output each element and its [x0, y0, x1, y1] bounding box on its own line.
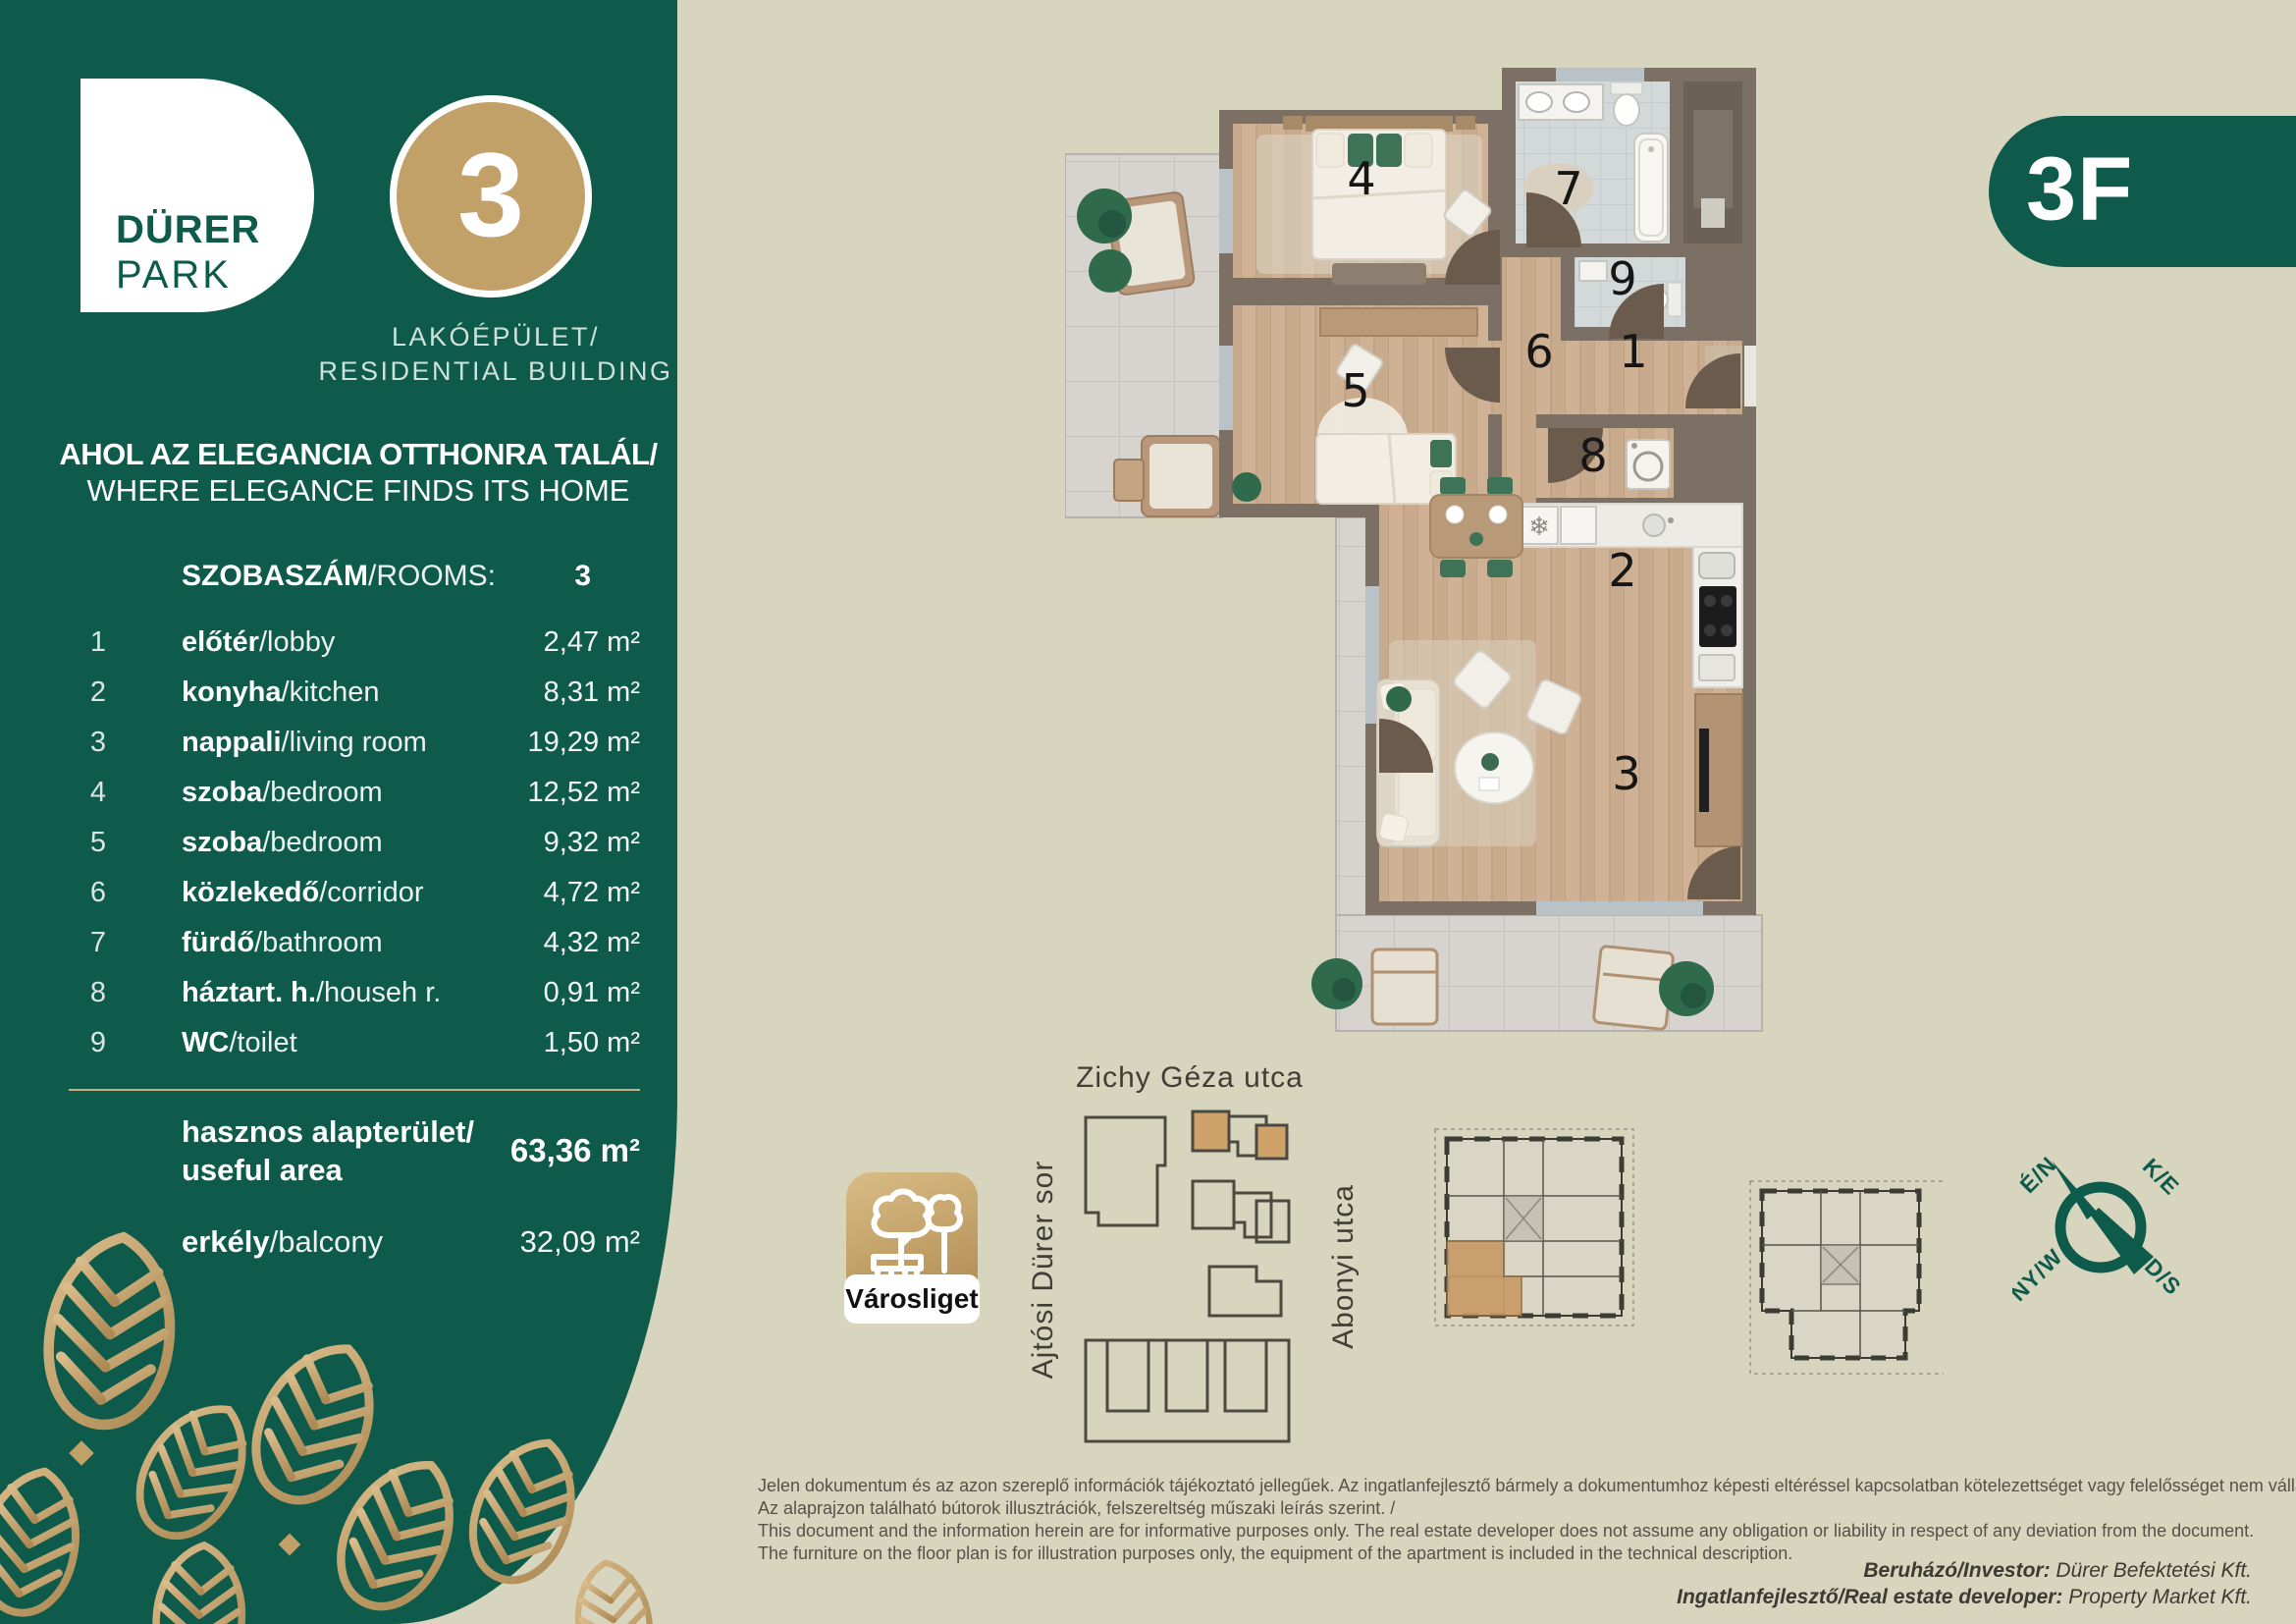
park-label: Városliget	[844, 1274, 980, 1324]
tagline: AHOL AZ ELEGANCIA OTTHONRA TALÁL/ WHERE …	[29, 436, 687, 509]
sitemap-building	[1209, 1267, 1281, 1316]
unit-label-pill: 3F	[1989, 116, 2296, 267]
rooms-table-header: SZOBASZÁM/ROOMS: 3	[69, 560, 640, 593]
credits: Beruházó/Investor: Dürer Befektetési Kft…	[1677, 1557, 2252, 1610]
room-number-8: 8	[1578, 429, 1607, 482]
terrace-lounger	[1372, 949, 1437, 1024]
tagline-hu: AHOL AZ ELEGANCIA OTTHONRA TALÁL/	[29, 436, 687, 472]
rooms-table: SZOBASZÁM/ROOMS: 3 1 előtér/lobby 2,47 m…	[69, 560, 640, 1260]
room-number-6: 6	[1524, 325, 1553, 378]
table-row: 8 háztart. h./househ r. 0,91 m²	[69, 977, 640, 1027]
useful-area-row: hasznos alapterület/ useful area 63,36 m…	[69, 1112, 640, 1189]
sitemap-courtyard	[1166, 1340, 1207, 1411]
building-caption-en: RESIDENTIAL BUILDING	[314, 354, 677, 389]
sitemap-building	[1086, 1117, 1165, 1225]
room-number-9: 9	[1608, 252, 1636, 305]
rooms-header-en: /ROOMS:	[368, 560, 496, 592]
logo-text-park: PARK	[116, 253, 232, 298]
key-plan-highlighted	[1435, 1129, 1633, 1326]
sitemap-building	[1086, 1340, 1289, 1441]
building-caption-hu: LAKÓÉPÜLET/	[314, 320, 677, 354]
sitemap-courtyard	[1225, 1340, 1266, 1411]
table-row: 3 nappali/living room 19,29 m²	[69, 727, 640, 777]
room-number-7: 7	[1554, 162, 1582, 215]
apartment-floorplan: ❄	[1065, 51, 1772, 1038]
table-row: 5 szoba/bedroom 9,32 m²	[69, 827, 640, 877]
street-label-left: Ajtósi Dürer sor	[1027, 1161, 1059, 1380]
disclaimer-line-1: Jelen dokumentum és az azon szereplő inf…	[758, 1475, 2289, 1497]
table-row: 9 WC/toilet 1,50 m²	[69, 1027, 640, 1077]
table-row: 1 előtér/lobby 2,47 m²	[69, 626, 640, 677]
shaft-panel	[1693, 110, 1733, 208]
sitemap-building-highlighted	[1193, 1111, 1229, 1151]
key-plan-plain	[1750, 1181, 1944, 1374]
durer-park-logo: DÜRER PARK	[80, 79, 314, 312]
sitemap-building	[1193, 1181, 1234, 1228]
gold-divider	[69, 1089, 640, 1091]
disclaimer-text: Jelen dokumentum és az azon szereplő inf…	[758, 1475, 2289, 1565]
room-number-1: 1	[1619, 325, 1647, 378]
freezer-snowflake-icon: ❄	[1528, 512, 1550, 541]
useful-area-label-en: useful area	[182, 1151, 510, 1189]
room-number-5: 5	[1341, 364, 1369, 417]
sitemap-courtyard	[1107, 1340, 1148, 1411]
room-number-4: 4	[1347, 152, 1375, 205]
logo-text-durer: DÜRER	[116, 208, 260, 252]
useful-area-label-hu: hasznos alapterület/	[182, 1112, 510, 1151]
developer-credit: Ingatlanfejlesztő/Real estate developer:…	[1677, 1584, 2252, 1610]
rooms-count: 3	[522, 560, 640, 593]
rooms-header-hu: SZOBASZÁM	[182, 560, 368, 592]
table-row: 2 konyha/kitchen 8,31 m²	[69, 677, 640, 727]
street-label-right: Abonyi utca	[1327, 1184, 1360, 1349]
compass-north-label: É/N	[2014, 1151, 2061, 1198]
compass-west-label: NY/W	[2012, 1244, 2067, 1307]
unit-label: 3F	[2026, 137, 2133, 241]
key-plans	[1433, 1127, 1944, 1379]
building-number: 3	[397, 102, 585, 287]
compass-east-label: K/E	[2138, 1154, 2185, 1201]
washing-machine	[1627, 440, 1670, 489]
table-row: 7 fürdő/bathroom 4,32 m²	[69, 927, 640, 977]
building-number-badge: 3	[390, 95, 592, 298]
room-number-2: 2	[1608, 544, 1636, 597]
compass-rose: É/N K/E NY/W D/S	[2012, 1137, 2199, 1324]
shaft-vent	[1701, 198, 1725, 228]
brochure-page: DÜRER PARK 3 LAKÓÉPÜLET/ RESIDENTIAL BUI…	[0, 0, 2296, 1624]
sitemap-building-highlighted	[1256, 1125, 1287, 1159]
table-row: 6 közlekedő/corridor 4,72 m²	[69, 877, 640, 927]
table-row: 4 szoba/bedroom 12,52 m²	[69, 777, 640, 827]
varosliget-badge: Városliget	[846, 1172, 978, 1326]
investor-credit: Beruházó/Investor: Dürer Befektetési Kft…	[1677, 1557, 2252, 1584]
entrance-door	[1744, 346, 1756, 406]
disclaimer-line-2: Az alaprajzon található bútorok illusztr…	[758, 1497, 2289, 1520]
room-number-3: 3	[1612, 747, 1640, 800]
building-caption: LAKÓÉPÜLET/ RESIDENTIAL BUILDING	[314, 320, 677, 389]
tree-pattern-decoration	[0, 1203, 766, 1624]
street-label-top: Zichy Géza utca	[1076, 1061, 1304, 1094]
site-map: Zichy Géza utca Ajtósi Dürer sor Abonyi …	[1021, 1056, 1482, 1458]
disclaimer-line-3: This document and the information herein…	[758, 1520, 2289, 1543]
tagline-en: WHERE ELEGANCE FINDS ITS HOME	[29, 472, 687, 509]
useful-area-value: 63,36 m²	[510, 1132, 640, 1169]
